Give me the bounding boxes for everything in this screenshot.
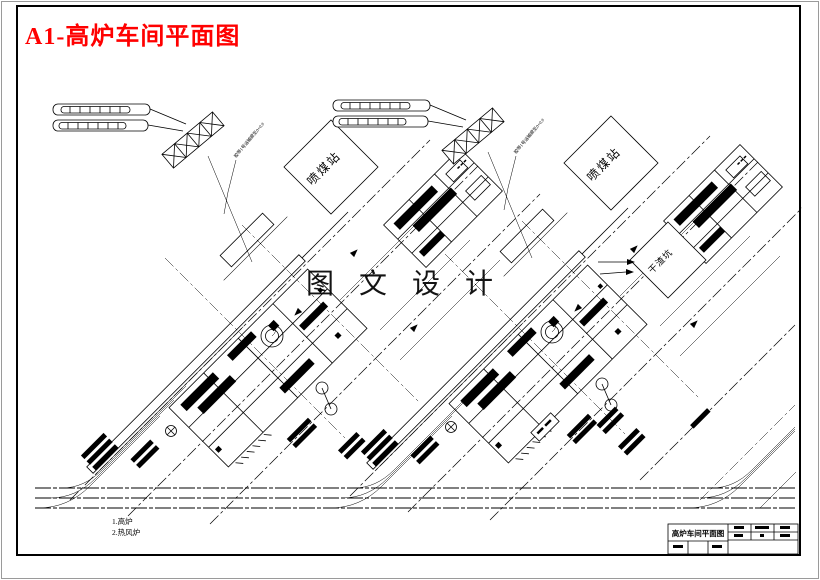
legend-item-blast-furnace: 1.高炉 bbox=[112, 516, 133, 526]
cad-viewer-window: A1-高炉车间平面图 图 文 设 计 bbox=[0, 0, 820, 580]
dry-slag-pit: 干渣坑 bbox=[598, 222, 706, 298]
legend: 1.高炉 2.热风炉 bbox=[112, 516, 140, 537]
plan-drawing-canvas: 胶带1号运输廊至0+0.0 喷煤站 bbox=[17, 6, 802, 556]
rail-wagons bbox=[690, 408, 711, 429]
title-block: 高炉车间平面图 bbox=[668, 524, 798, 554]
title-block-drawing-name: 高炉车间平面图 bbox=[672, 528, 725, 538]
legend-item-hot-blast-stove: 2.热风炉 bbox=[112, 527, 140, 537]
